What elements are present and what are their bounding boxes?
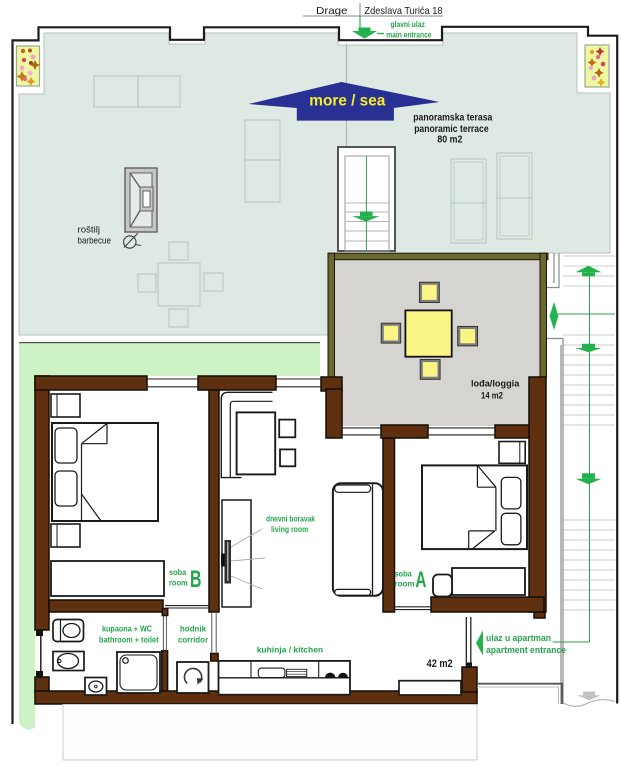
svg-text:ulaz u apartman: ulaz u apartman	[486, 633, 551, 643]
svg-text:80 m2: 80 m2	[437, 135, 462, 146]
svg-text:roštilj: roštilj	[78, 225, 101, 235]
svg-text:barbecue: barbecue	[78, 236, 111, 246]
svg-text:kuhinja / kitchen: kuhinja / kitchen	[257, 645, 323, 655]
svg-text:living room: living room	[271, 524, 309, 534]
svg-text:A: A	[415, 567, 426, 592]
svg-text:soba: soba	[395, 570, 413, 579]
svg-text:glavni ulaz: glavni ulaz	[391, 19, 425, 29]
svg-text:room: room	[169, 579, 188, 588]
svg-text:14 m2: 14 m2	[481, 391, 503, 401]
svg-text:lođa/loggia: lođa/loggia	[471, 379, 519, 389]
svg-text:more / sea: more / sea	[309, 93, 385, 110]
svg-text:corridor: corridor	[178, 635, 209, 645]
svg-text:soba: soba	[169, 568, 187, 577]
svg-text:B: B	[190, 566, 202, 593]
svg-text:dnevni boravak: dnevni boravak	[266, 514, 315, 524]
svg-text:room: room	[395, 580, 415, 589]
svg-text:hodnik: hodnik	[180, 624, 206, 634]
svg-text:panoramic terrace: panoramic terrace	[414, 124, 489, 135]
svg-text:apartment entrance: apartment entrance	[486, 645, 566, 655]
svg-text:bathroom + toilet: bathroom + toilet	[99, 635, 159, 645]
svg-text:main entrance: main entrance	[386, 30, 431, 40]
svg-text:panoramska terasa: panoramska terasa	[413, 113, 493, 124]
svg-text:42 m2: 42 m2	[427, 658, 453, 670]
svg-text:Drage: Drage	[316, 5, 348, 17]
svg-text:kupaona + WC: kupaona + WC	[102, 624, 152, 634]
svg-text:Zdeslava Turića 18: Zdeslava Turića 18	[365, 5, 443, 17]
